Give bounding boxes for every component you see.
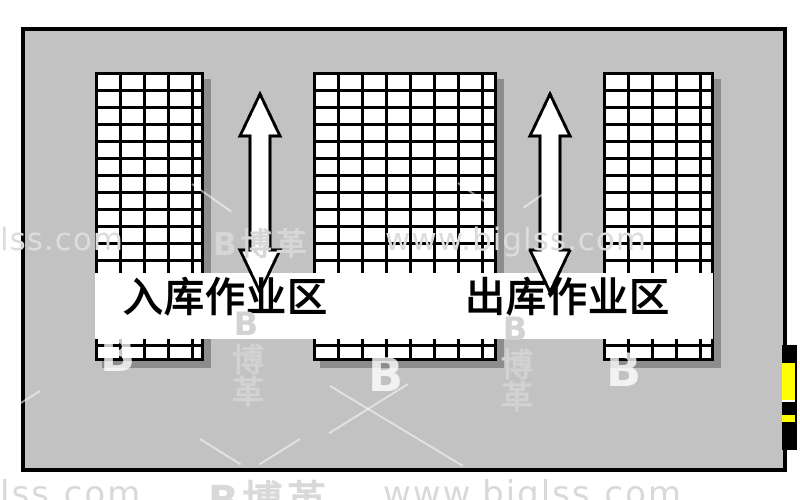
dock-door-marker [782, 345, 797, 450]
watermark-url-bottom-right: www.biglss.com [383, 474, 683, 500]
watermark-url-bottom-left: lss.com [0, 474, 142, 500]
outbound-zone-label: 出库作业区 [465, 277, 670, 319]
dock-door-yellow-stripe-small [782, 415, 795, 422]
dock-door-separator [782, 400, 795, 402]
warehouse-diagram: 入库作业区 出库作业区 lss.com B博革 www.biglss.com B… [0, 0, 800, 500]
dock-door-yellow-stripe [782, 363, 795, 400]
inbound-zone-label: 入库作业区 [123, 277, 328, 319]
watermark-logo-bottom: B博革 [208, 468, 331, 500]
